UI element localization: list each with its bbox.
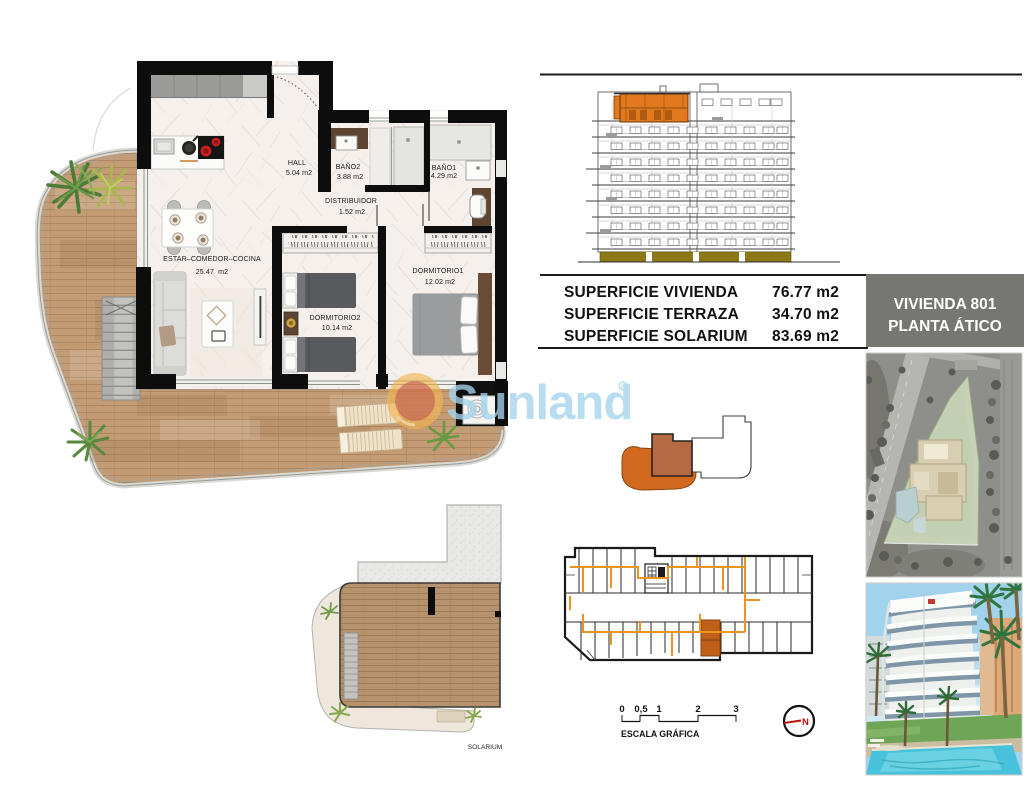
svg-text:12.02 m2: 12.02 m2 bbox=[425, 278, 455, 286]
svg-text:5.04 m2: 5.04 m2 bbox=[286, 169, 312, 177]
svg-text:2: 2 bbox=[695, 704, 700, 715]
svg-text:1.52 m2: 1.52 m2 bbox=[339, 208, 365, 216]
svg-text:34.70 m2: 34.70 m2 bbox=[772, 306, 839, 323]
svg-text:Sunland: Sunland bbox=[446, 376, 632, 430]
svg-text:10.14 m2: 10.14 m2 bbox=[322, 324, 352, 332]
svg-text:SOLARIUM: SOLARIUM bbox=[468, 744, 502, 751]
svg-text:VIVIENDA 801: VIVIENDA 801 bbox=[894, 296, 997, 313]
svg-text:3: 3 bbox=[733, 704, 738, 715]
svg-text:BAÑO2: BAÑO2 bbox=[336, 162, 361, 171]
svg-text:DORMITORIO2: DORMITORIO2 bbox=[309, 314, 360, 322]
svg-text:DISTRIBUIDOR: DISTRIBUIDOR bbox=[325, 197, 377, 205]
svg-text:BAÑO1: BAÑO1 bbox=[432, 163, 457, 172]
svg-text:R: R bbox=[621, 385, 626, 391]
svg-text:25.47 m2: 25.47 m2 bbox=[196, 268, 228, 276]
svg-text:3.88 m2: 3.88 m2 bbox=[337, 173, 363, 181]
svg-text:0,5: 0,5 bbox=[634, 704, 648, 715]
svg-text:4.29 m2: 4.29 m2 bbox=[431, 172, 457, 180]
svg-text:DORMITORIO1: DORMITORIO1 bbox=[412, 267, 463, 275]
svg-text:83.69 m2: 83.69 m2 bbox=[772, 328, 839, 345]
svg-text:SUPERFICIE TERRAZA: SUPERFICIE TERRAZA bbox=[564, 306, 739, 323]
svg-text:76.77 m2: 76.77 m2 bbox=[772, 284, 839, 301]
svg-text:SUPERFICIE SOLARIUM: SUPERFICIE SOLARIUM bbox=[564, 328, 748, 345]
svg-text:N: N bbox=[802, 717, 809, 728]
svg-text:ESTAR–COMEDOR–COCINA: ESTAR–COMEDOR–COCINA bbox=[163, 255, 261, 263]
svg-text:HALL: HALL bbox=[288, 159, 306, 167]
svg-text:ESCALA GRÁFICA: ESCALA GRÁFICA bbox=[621, 729, 700, 739]
svg-text:SUPERFICIE VIVIENDA: SUPERFICIE VIVIENDA bbox=[564, 284, 738, 301]
svg-text:1: 1 bbox=[656, 704, 662, 715]
svg-text:PLANTA ÁTICO: PLANTA ÁTICO bbox=[888, 318, 1002, 335]
svg-text:0: 0 bbox=[619, 704, 624, 715]
